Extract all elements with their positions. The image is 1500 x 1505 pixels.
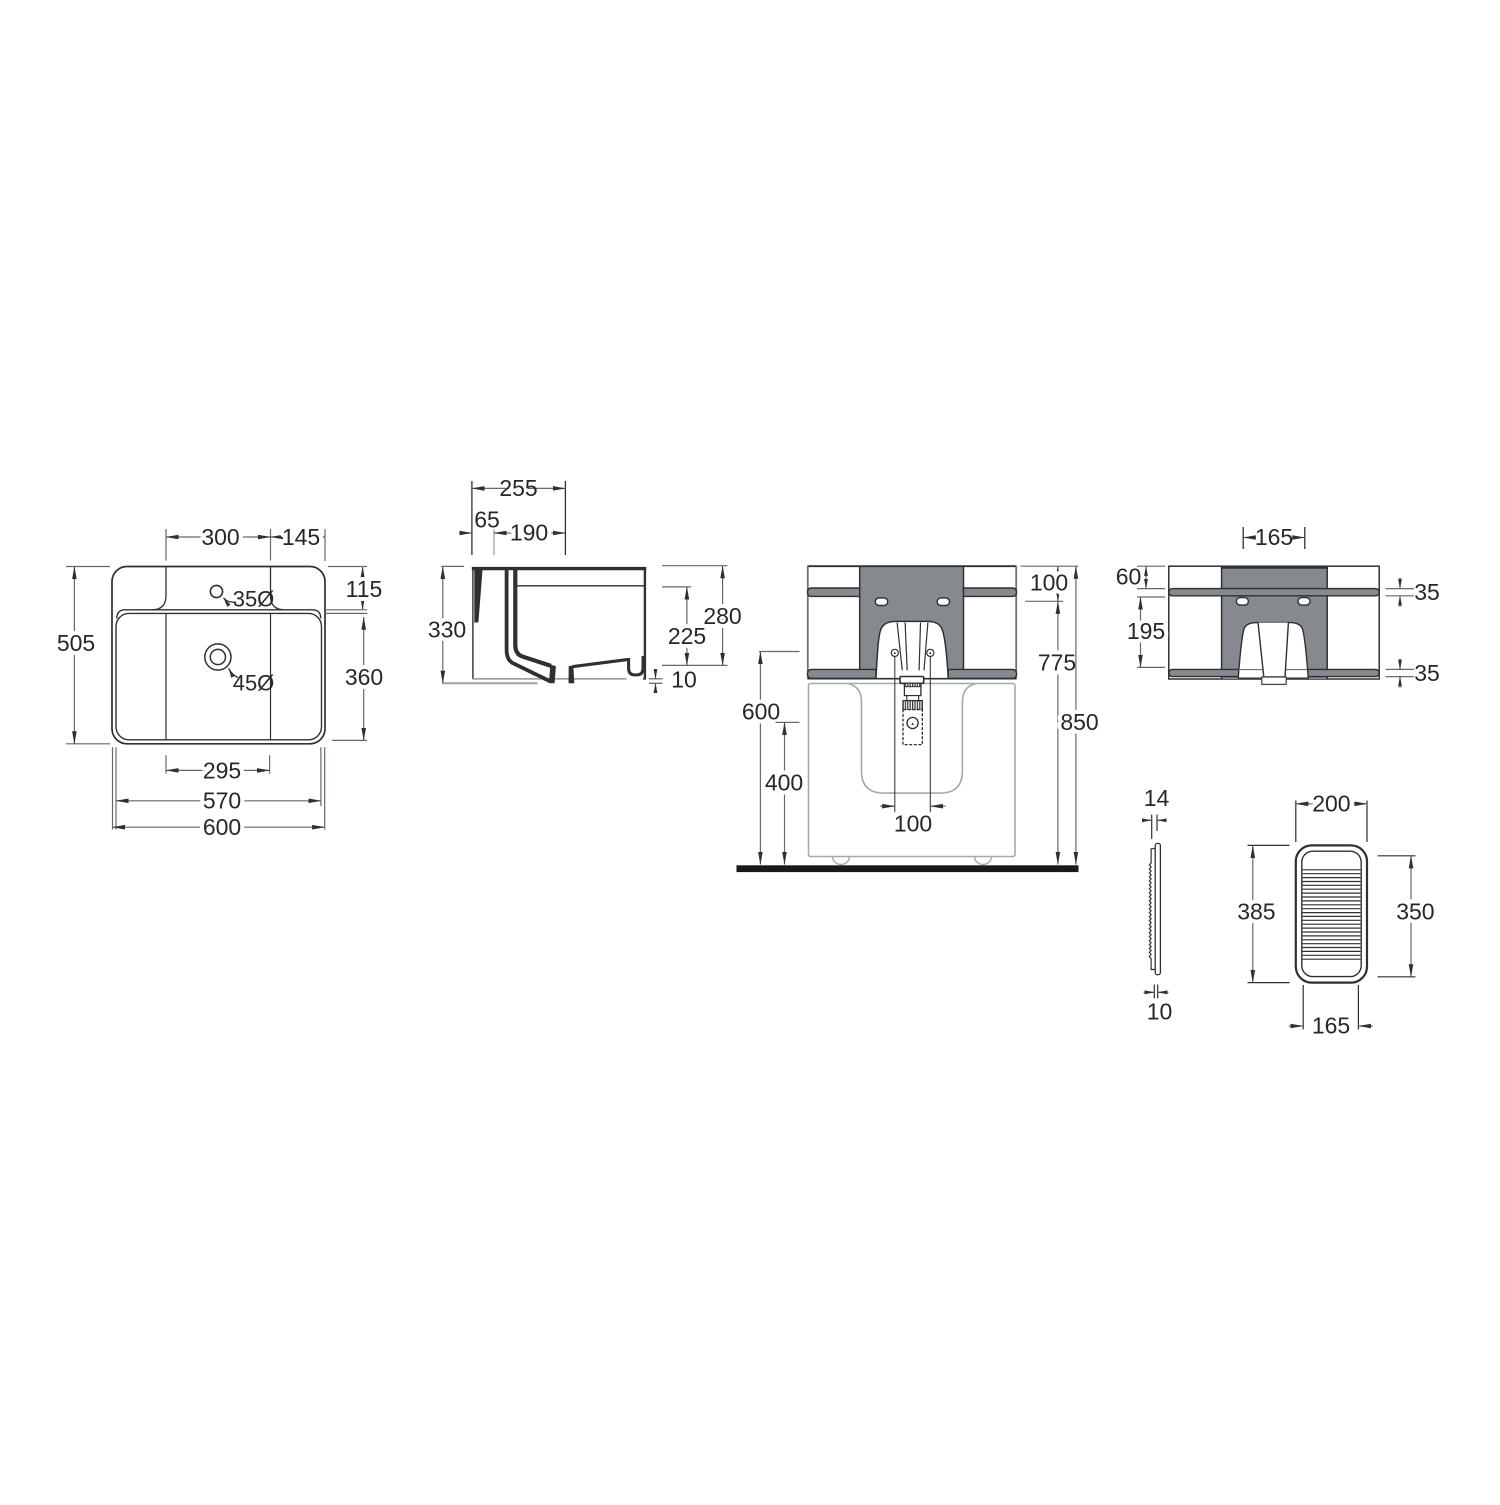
svg-text:400: 400 <box>765 770 803 796</box>
svg-text:775: 775 <box>1038 650 1076 676</box>
svg-text:195: 195 <box>1127 618 1165 644</box>
svg-text:600: 600 <box>203 814 241 840</box>
svg-text:10: 10 <box>671 667 697 693</box>
svg-text:850: 850 <box>1060 709 1098 735</box>
svg-text:14: 14 <box>1144 785 1170 811</box>
svg-text:360: 360 <box>345 664 383 690</box>
svg-text:300: 300 <box>201 524 239 550</box>
svg-text:505: 505 <box>57 630 95 656</box>
svg-text:115: 115 <box>346 576 383 602</box>
svg-text:385: 385 <box>1237 899 1275 925</box>
svg-text:570: 570 <box>203 788 241 814</box>
svg-text:190: 190 <box>510 520 548 546</box>
svg-text:35: 35 <box>1414 660 1440 686</box>
svg-text:10: 10 <box>1147 999 1173 1025</box>
svg-text:295: 295 <box>203 758 241 784</box>
svg-text:65: 65 <box>474 507 500 533</box>
svg-text:165: 165 <box>1312 1013 1350 1039</box>
svg-text:35: 35 <box>1414 579 1440 605</box>
svg-text:330: 330 <box>428 617 466 643</box>
svg-text:45Ø: 45Ø <box>233 671 275 696</box>
svg-text:600: 600 <box>742 699 780 725</box>
svg-text:165: 165 <box>1255 524 1293 550</box>
svg-text:35Ø: 35Ø <box>233 587 275 612</box>
svg-text:255: 255 <box>499 475 537 501</box>
svg-text:225: 225 <box>668 623 706 649</box>
svg-text:145: 145 <box>282 524 320 550</box>
svg-text:280: 280 <box>703 603 741 629</box>
svg-text:200: 200 <box>1312 791 1350 817</box>
svg-text:100: 100 <box>1030 570 1068 596</box>
svg-text:60: 60 <box>1116 564 1142 590</box>
svg-text:350: 350 <box>1396 899 1434 925</box>
svg-text:100: 100 <box>894 811 932 837</box>
